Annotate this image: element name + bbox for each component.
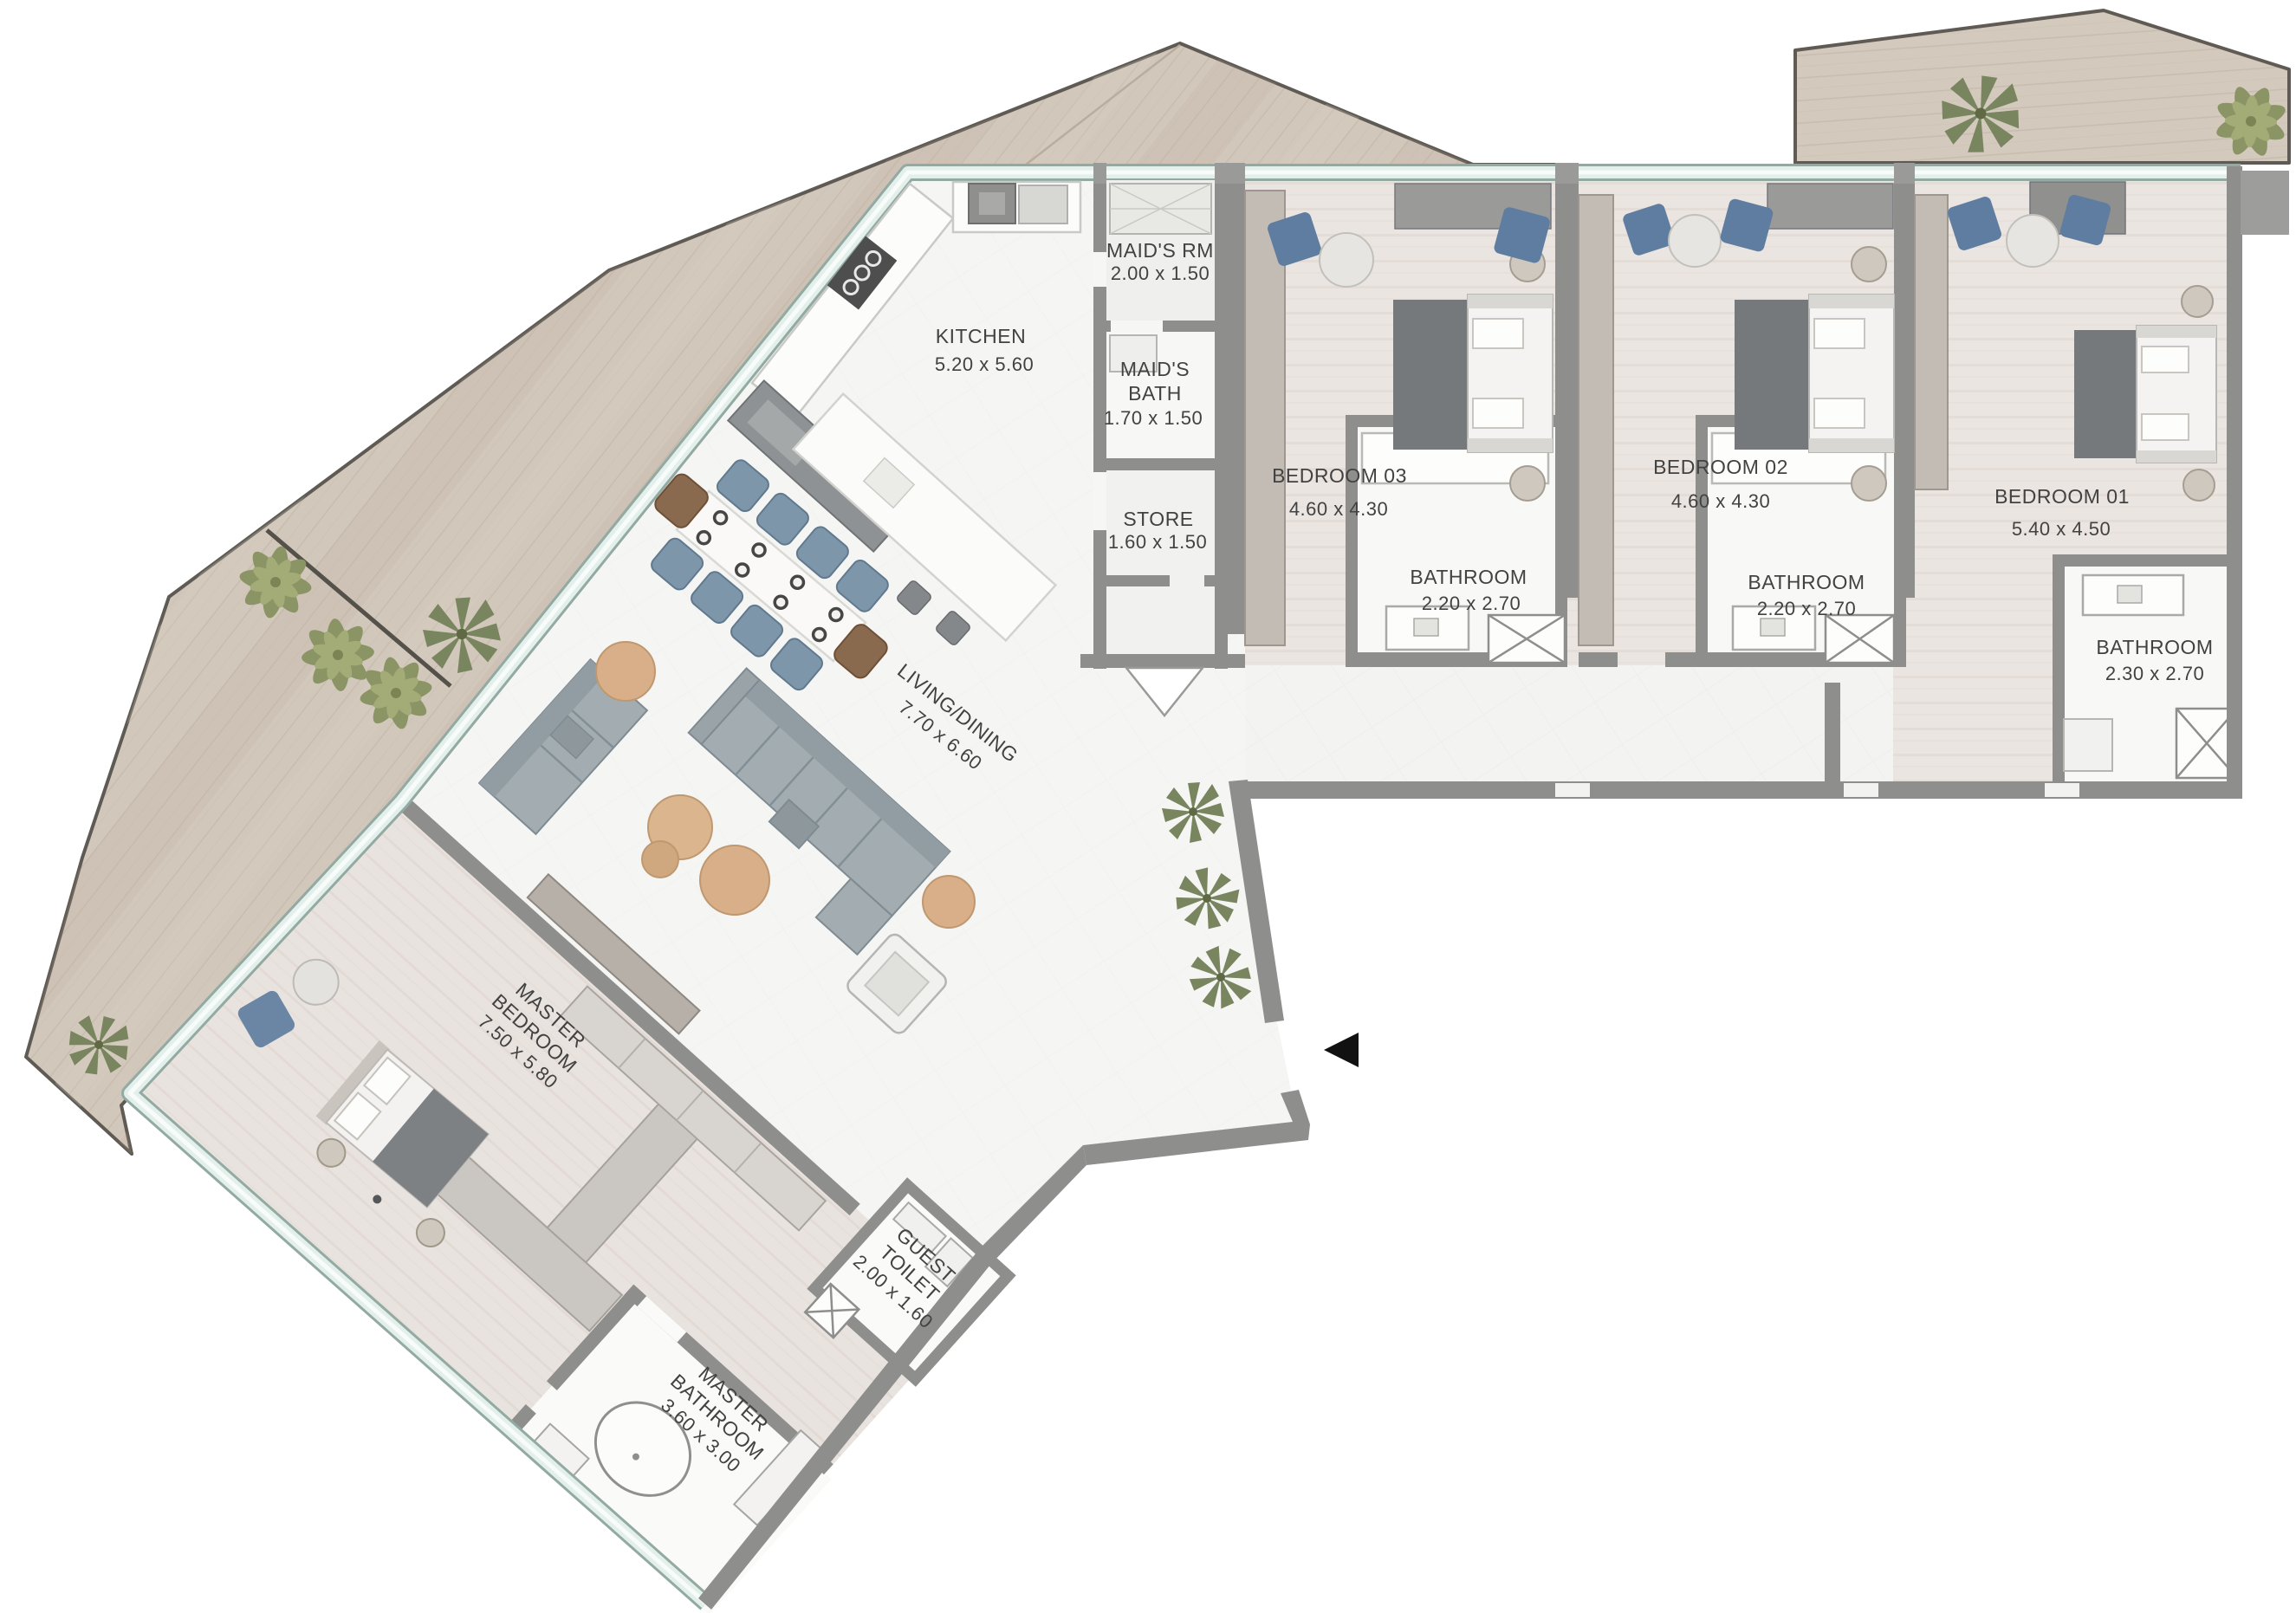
svg-text:MAID'S RM: MAID'S RM — [1106, 239, 1214, 262]
svg-text:5.20 x 5.60: 5.20 x 5.60 — [935, 353, 1034, 375]
svg-text:BEDROOM 03: BEDROOM 03 — [1272, 464, 1407, 487]
svg-text:STORE: STORE — [1123, 508, 1193, 530]
svg-text:4.60 x 4.30: 4.60 x 4.30 — [1289, 498, 1388, 520]
svg-text:1.60 x 1.50: 1.60 x 1.50 — [1108, 531, 1207, 553]
svg-text:2.00 x 1.50: 2.00 x 1.50 — [1111, 262, 1210, 284]
svg-text:4.60 x 4.30: 4.60 x 4.30 — [1671, 490, 1770, 512]
svg-text:5.40 x 4.50: 5.40 x 4.50 — [2012, 518, 2111, 540]
svg-text:2.20 x 2.70: 2.20 x 2.70 — [1757, 598, 1856, 619]
svg-text:1.70 x 1.50: 1.70 x 1.50 — [1104, 407, 1203, 429]
svg-text:BEDROOM 01: BEDROOM 01 — [1994, 485, 2130, 508]
svg-text:BEDROOM 02: BEDROOM 02 — [1653, 456, 1788, 478]
svg-text:KITCHEN: KITCHEN — [936, 325, 1026, 347]
svg-text:BATHROOM: BATHROOM — [1748, 571, 1865, 593]
svg-text:MAID'S: MAID'S — [1120, 358, 1190, 380]
svg-text:BATH: BATH — [1128, 382, 1182, 405]
svg-text:2.30 x 2.70: 2.30 x 2.70 — [2105, 663, 2204, 684]
svg-text:BATHROOM: BATHROOM — [2096, 636, 2213, 658]
svg-text:BATHROOM: BATHROOM — [1410, 566, 1527, 588]
svg-text:2.20 x 2.70: 2.20 x 2.70 — [1422, 593, 1521, 614]
